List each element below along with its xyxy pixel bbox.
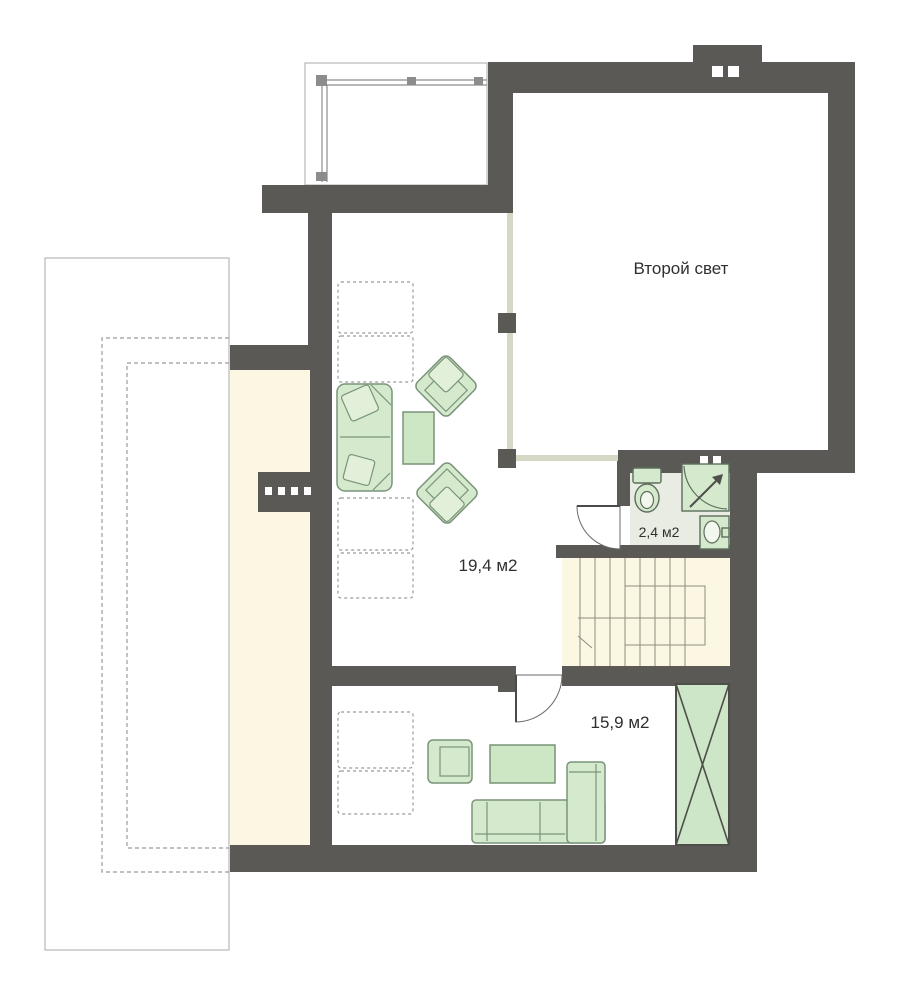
- wall-door-notch: [498, 678, 516, 692]
- wall-bottom: [230, 845, 757, 872]
- coffee-table-symbol: [403, 412, 434, 464]
- vent-1: [700, 456, 708, 464]
- armchair-symbol: [413, 353, 478, 418]
- room-label-living: 19,4 м2: [459, 556, 518, 575]
- armchair-symbol: [414, 460, 479, 525]
- balcony-outline: [305, 63, 487, 185]
- vent-2: [713, 456, 721, 464]
- chimney-flue-2: [728, 66, 739, 77]
- wall-right-lower: [730, 473, 757, 872]
- terrace-floor: [230, 370, 310, 845]
- wall-terrace-top: [230, 345, 332, 370]
- furniture-placeholder: [338, 553, 413, 598]
- furniture-placeholder: [338, 498, 413, 550]
- bathroom-door: [577, 506, 620, 549]
- floor-plan: Второй свет 19,4 м2 15,9 м2 2,4 м2: [0, 0, 900, 1000]
- wardrobe-symbol: [676, 684, 729, 845]
- wall-right-upper: [828, 62, 855, 473]
- wall-left-upper: [308, 213, 332, 348]
- room-label-second-light: Второй свет: [634, 259, 729, 278]
- furniture-placeholder: [338, 282, 413, 333]
- floor-plan-canvas: Второй свет 19,4 м2 15,9 м2 2,4 м2: [0, 0, 900, 1000]
- toilet-symbol: [633, 468, 661, 512]
- wall-bathroom-left: [617, 455, 630, 506]
- sink-symbol: [700, 516, 729, 549]
- partition-post-2: [498, 449, 516, 468]
- room-label-bedroom: 15,9 м2: [591, 713, 650, 732]
- furniture-placeholder: [338, 771, 413, 814]
- roof-outline-left: [45, 258, 229, 950]
- chimney-flue-1: [712, 66, 723, 77]
- living-room-furniture: [337, 282, 480, 598]
- wall-secondlight-left: [488, 62, 513, 192]
- coffee-table-symbol: [490, 745, 555, 783]
- small-armchair-symbol: [428, 740, 472, 783]
- wall-top: [488, 62, 855, 93]
- second-light-partition: [498, 213, 618, 468]
- wall-living-top: [262, 185, 513, 213]
- shower-symbol: [682, 464, 729, 511]
- furniture-placeholder: [338, 712, 413, 768]
- bedroom-door: [516, 675, 562, 722]
- furniture-placeholder: [338, 336, 413, 382]
- partition-post-1: [498, 313, 516, 333]
- sofa-symbol: [337, 384, 392, 491]
- wall-living-left: [310, 368, 332, 845]
- wall-bedroom-top-left: [332, 666, 516, 686]
- room-label-bathroom: 2,4 м2: [639, 524, 680, 540]
